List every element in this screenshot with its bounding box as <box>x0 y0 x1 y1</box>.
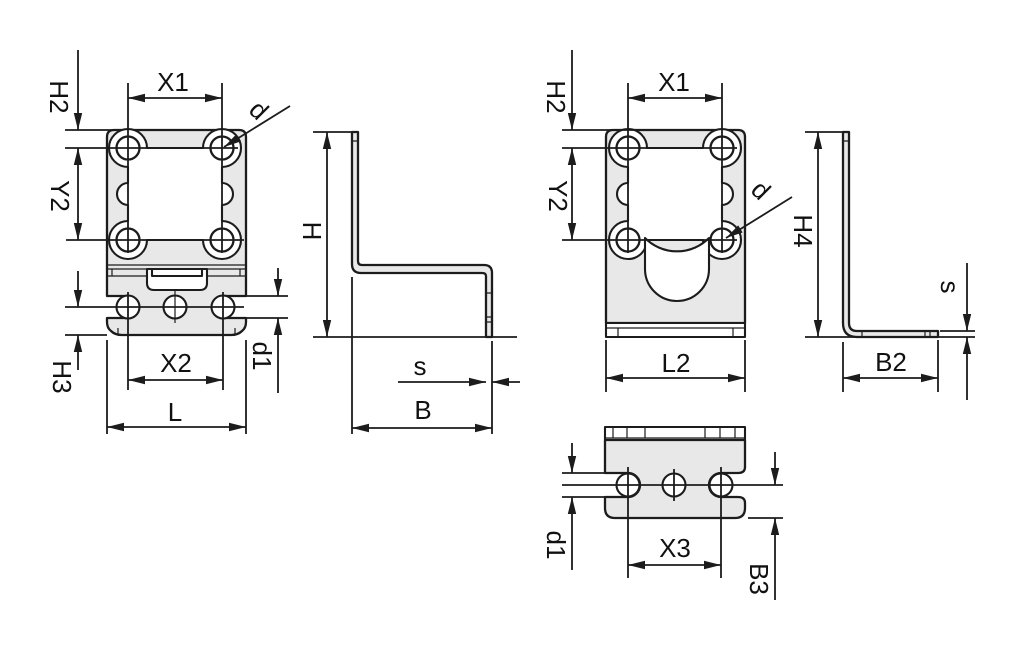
dim-label-y2-left: Y2 <box>45 180 75 212</box>
dim-label-l: L <box>168 397 182 427</box>
side-view-left: H s B <box>297 132 520 434</box>
dim-label-l2: L2 <box>662 348 691 378</box>
dim-label-b2: B2 <box>875 347 907 377</box>
dim-label-s-right: s <box>935 281 965 294</box>
dim-label-d1-top: d1 <box>541 531 571 560</box>
drawing-page: H2 X1 d Y2 H3 X2 L d1 H s B <box>0 0 1010 648</box>
dim-label-d-left: d <box>243 94 274 125</box>
dim-label-b: B <box>414 395 431 425</box>
technical-drawing: H2 X1 d Y2 H3 X2 L d1 H s B <box>0 0 1010 648</box>
top-view: d1 X3 B3 <box>541 427 783 600</box>
dim-label-h2-left: H2 <box>44 80 74 113</box>
dim-label-x1-right: X1 <box>658 67 690 97</box>
front-view-right: H2 X1 Y2 d L2 <box>541 50 792 392</box>
edge-ticks <box>843 141 930 337</box>
dim-label-h2-right: H2 <box>541 80 571 113</box>
dim-label-b3: B3 <box>744 563 774 595</box>
profile-body <box>843 132 938 337</box>
ground-line <box>805 132 975 337</box>
edge-ticks <box>352 141 492 322</box>
dim-label-x2: X2 <box>160 348 192 378</box>
dim-label-d1-left: d1 <box>247 342 277 371</box>
dim-label-d-right: d <box>745 174 776 205</box>
dim-label-h: H <box>297 222 327 241</box>
base-band <box>606 323 745 337</box>
dim-label-x3: X3 <box>659 533 691 563</box>
front-view-left: H2 X1 d Y2 H3 X2 L d1 <box>44 50 290 434</box>
dim-label-h3: H3 <box>47 360 77 393</box>
dim-label-y2-right: Y2 <box>543 180 573 212</box>
side-view-right: H4 s B2 <box>788 132 975 400</box>
dim-label-h4: H4 <box>788 214 818 247</box>
dim-label-x1-left: X1 <box>157 67 189 97</box>
profile-body <box>352 132 492 337</box>
dim-label-s-left: s <box>414 351 427 381</box>
tongue-inner-slot <box>152 269 202 276</box>
